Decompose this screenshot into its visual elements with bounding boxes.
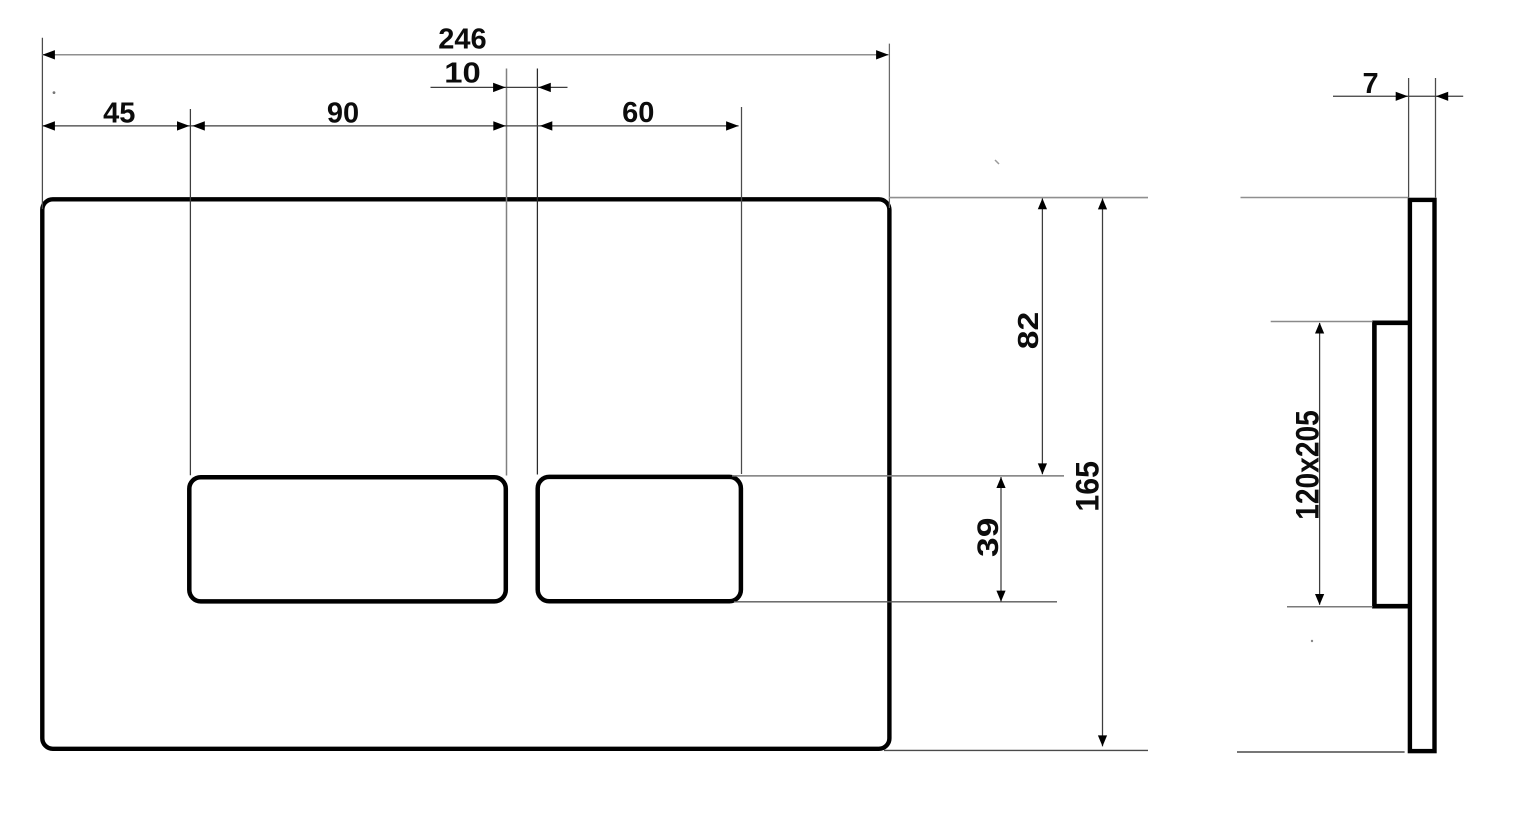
svg-text:165: 165 [1070, 461, 1106, 512]
svg-text:10: 10 [444, 56, 480, 89]
svg-text:39: 39 [971, 518, 1005, 557]
svg-text:246: 246 [438, 24, 486, 56]
svg-text:7: 7 [1363, 68, 1379, 100]
svg-text:120x205: 120x205 [1291, 410, 1326, 520]
svg-text:90: 90 [327, 98, 359, 130]
svg-text:60: 60 [622, 97, 654, 129]
svg-text:45: 45 [103, 97, 135, 129]
svg-text:82: 82 [1012, 312, 1044, 349]
